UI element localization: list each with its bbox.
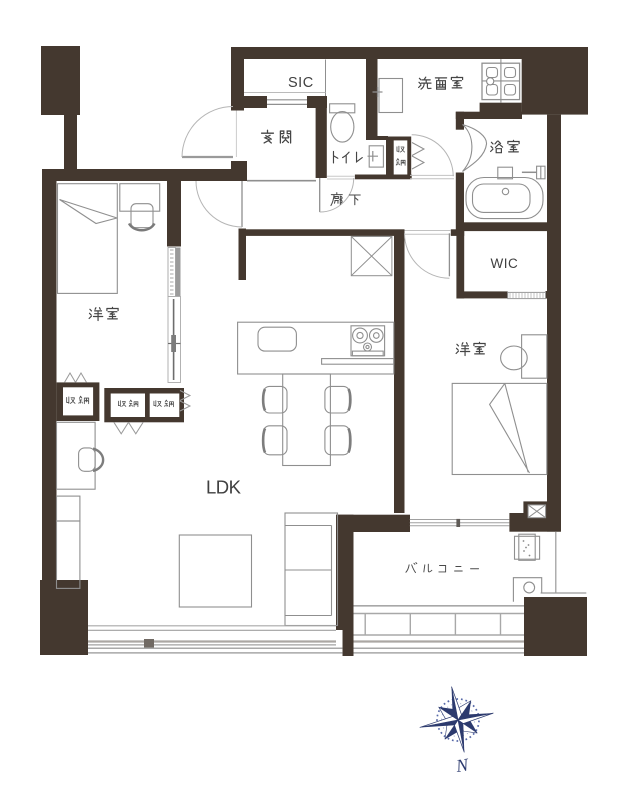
svg-text:WIC: WIC (491, 256, 519, 271)
svg-text:LDK: LDK (206, 477, 242, 498)
svg-text:SIC: SIC (288, 75, 314, 91)
